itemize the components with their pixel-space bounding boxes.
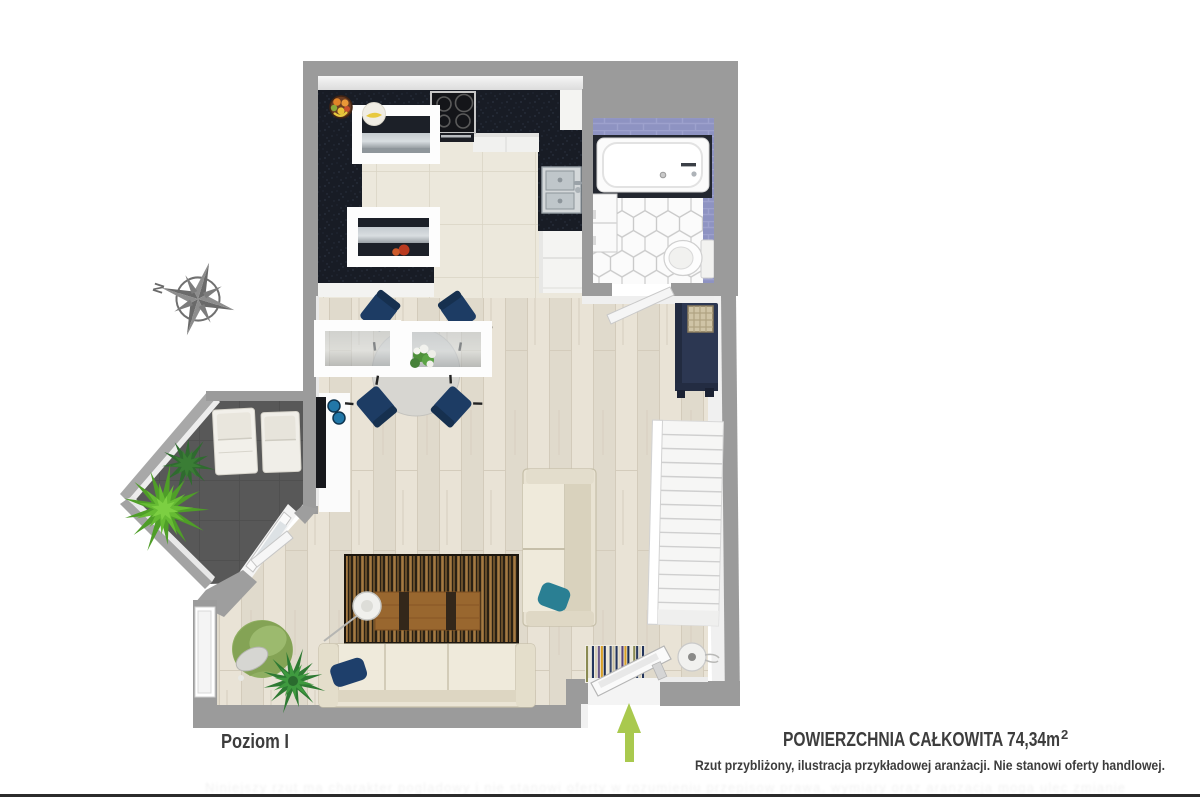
svg-text:POWIERZCHNIA CAŁKOWITA 74,34m: POWIERZCHNIA CAŁKOWITA 74,34m — [783, 729, 1060, 751]
svg-text:2: 2 — [1061, 727, 1068, 742]
svg-text:Rzut przybliżony, ilustracja p: Rzut przybliżony, ilustracja przykładowe… — [695, 757, 1165, 773]
svg-text:Niniejszy rzut ma charakter po: Niniejszy rzut ma charakter pogladowy i … — [205, 780, 1125, 795]
svg-text:Poziom I: Poziom I — [221, 730, 289, 753]
